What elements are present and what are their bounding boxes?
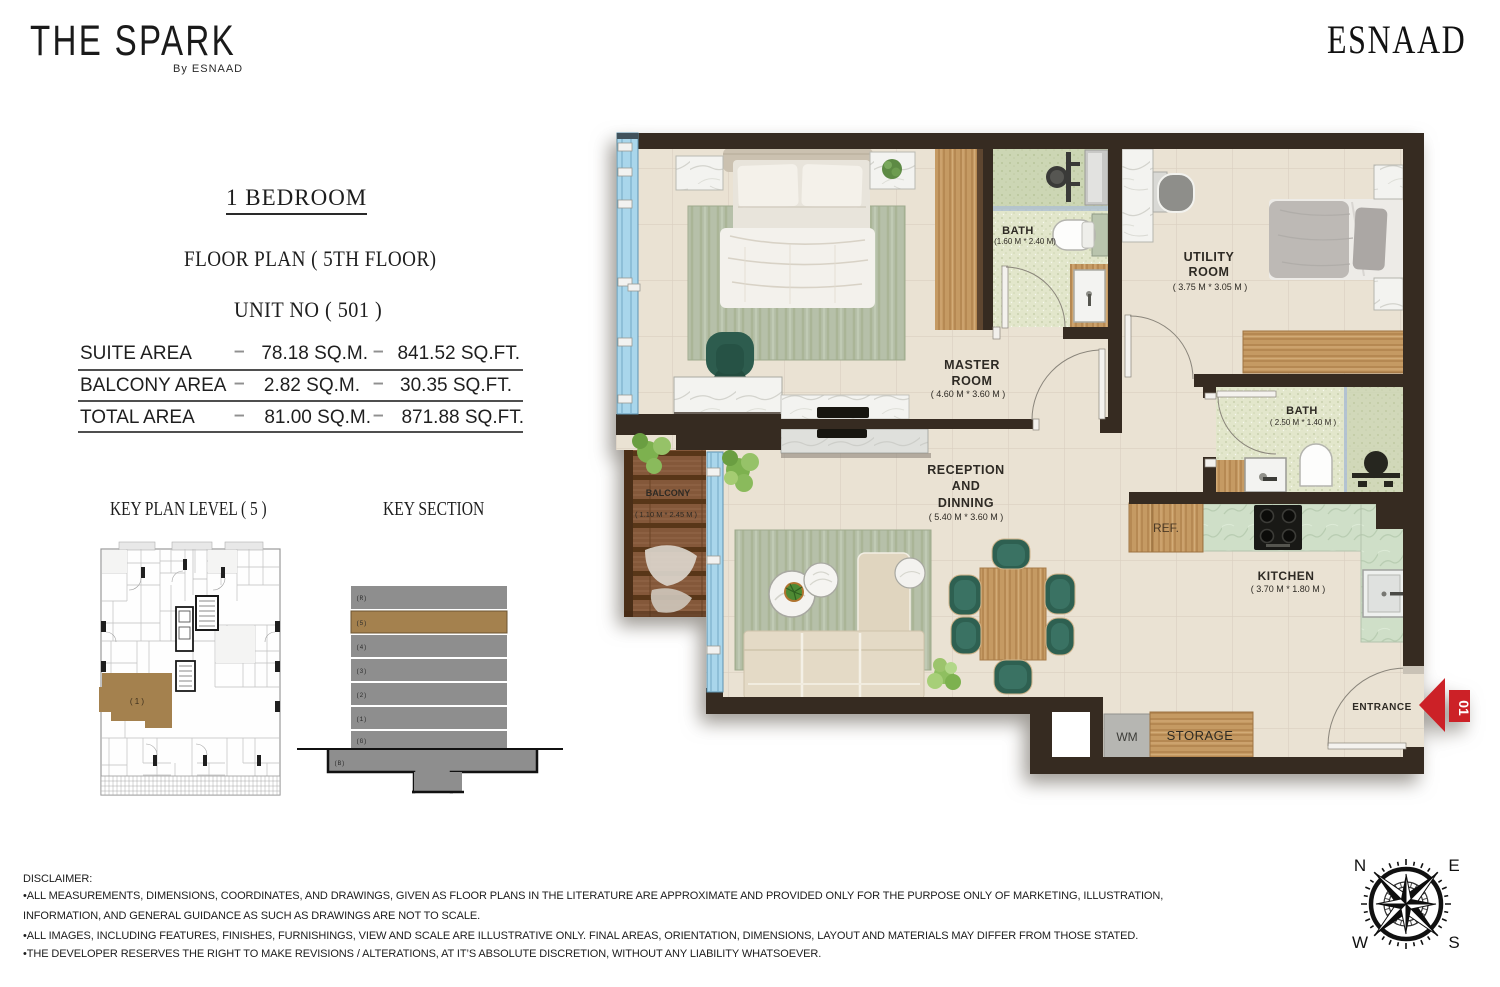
svg-text:E: E bbox=[1448, 856, 1459, 875]
svg-text:( 2.50 M * 1.40 M ): ( 2.50 M * 1.40 M ) bbox=[1270, 418, 1337, 427]
svg-text:(5): (5) bbox=[356, 620, 367, 627]
svg-text:WM: WM bbox=[1116, 730, 1137, 744]
svg-text:( 3.75 M * 3.05 M ): ( 3.75 M * 3.05 M ) bbox=[1173, 282, 1248, 292]
svg-text:( 1.10 M * 2.45 M ): ( 1.10 M * 2.45 M ) bbox=[635, 510, 698, 519]
svg-text:BALCONY: BALCONY bbox=[646, 488, 691, 498]
svg-text:BATH: BATH bbox=[1002, 225, 1034, 237]
svg-text:RECEPTION: RECEPTION bbox=[927, 463, 1004, 477]
svg-text:(1): (1) bbox=[356, 716, 367, 723]
svg-text:ROOM: ROOM bbox=[1189, 265, 1230, 279]
svg-text:UTILITY: UTILITY bbox=[1184, 250, 1235, 264]
svg-text:S: S bbox=[1448, 933, 1459, 952]
svg-text:BATH: BATH bbox=[1286, 405, 1318, 417]
svg-text:(2): (2) bbox=[356, 692, 367, 699]
svg-text:( 5.40 M * 3.60 M ): ( 5.40 M * 3.60 M ) bbox=[929, 512, 1004, 522]
svg-text:KITCHEN: KITCHEN bbox=[1258, 569, 1315, 583]
svg-text:AND: AND bbox=[952, 479, 981, 493]
svg-text:( 3.70 M * 1.80 M ): ( 3.70 M * 1.80 M ) bbox=[1251, 584, 1326, 594]
svg-text:ENTRANCE: ENTRANCE bbox=[1352, 702, 1412, 713]
svg-text:W: W bbox=[1352, 933, 1368, 952]
svg-text:(3): (3) bbox=[356, 668, 367, 675]
svg-text:MASTER: MASTER bbox=[944, 358, 1000, 372]
svg-text:(G): (G) bbox=[356, 738, 367, 745]
svg-text:( 1 ): ( 1 ) bbox=[130, 697, 145, 706]
svg-text:N: N bbox=[1354, 856, 1366, 875]
svg-text:ROOM: ROOM bbox=[952, 374, 993, 388]
svg-text:(4): (4) bbox=[356, 644, 367, 651]
svg-text:STORAGE: STORAGE bbox=[1167, 728, 1234, 743]
svg-text:(B): (B) bbox=[334, 760, 345, 767]
svg-text:(R): (R) bbox=[356, 595, 367, 602]
svg-text:01: 01 bbox=[1456, 700, 1472, 716]
svg-text:REF.: REF. bbox=[1153, 521, 1179, 535]
svg-text:( 4.60 M * 3.60 M ): ( 4.60 M * 3.60 M ) bbox=[931, 389, 1006, 399]
svg-text:(1.60 M * 2.40 M): (1.60 M * 2.40 M) bbox=[994, 237, 1056, 246]
svg-text:DINNING: DINNING bbox=[938, 496, 994, 510]
